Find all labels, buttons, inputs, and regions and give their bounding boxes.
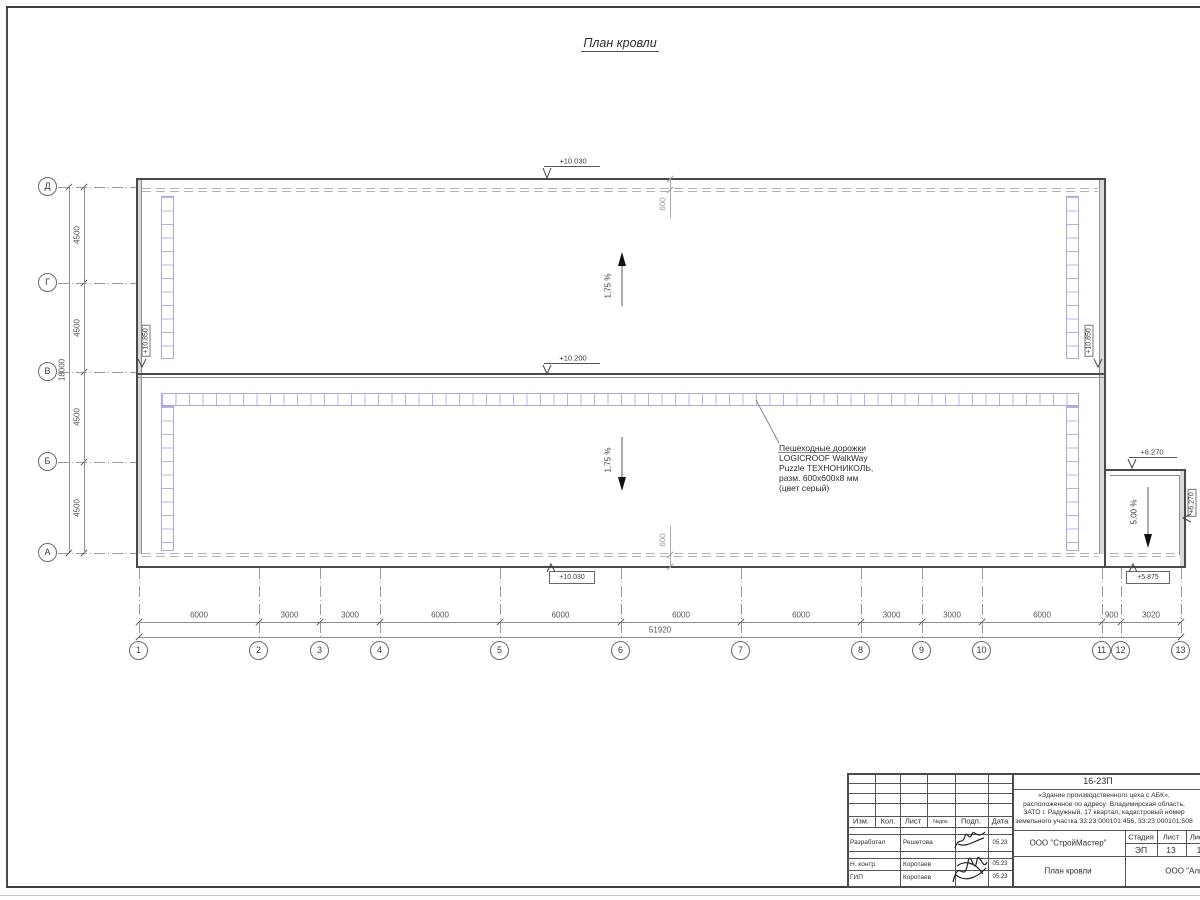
axis-bubble-row: В (38, 362, 57, 381)
tb-date-1: 05.23 (992, 861, 1007, 867)
axis-bubble-col: 12 (1111, 641, 1130, 660)
tb-line (1125, 843, 1200, 844)
dimension-label: 6000 (552, 611, 570, 620)
dimension-label: 6000 (190, 611, 208, 620)
parapet-dim-line-bottom (670, 526, 671, 568)
parapet-dash-top-2 (142, 191, 1098, 192)
tb-line (1186, 830, 1187, 856)
elevation-arrow-down-icon (136, 358, 148, 368)
tb-col-izm: Изм. (853, 817, 869, 826)
axis-bubble-col: 9 (912, 641, 931, 660)
tb-stage-value: ЭП (1135, 845, 1147, 855)
axis-bubble-col: 5 (490, 641, 509, 660)
tb-line (1157, 830, 1158, 856)
dimension-label: 6000 (431, 611, 449, 620)
dimension-label: 4500 (73, 319, 82, 337)
tb-stage-label: Стадия (1128, 833, 1154, 842)
elevation-arrow-down-icon (541, 363, 553, 375)
walkway-strip-lower-top (161, 393, 1079, 406)
tb-col-list: Лист (905, 817, 921, 826)
frame-top (6, 6, 1200, 8)
tb-line (875, 773, 876, 827)
axis-bubble-col: 7 (731, 641, 750, 660)
axis-line-col (380, 568, 381, 639)
dim-tick (1177, 633, 1184, 640)
axis-line-col (922, 568, 923, 639)
dimension-label: 6000 (1033, 611, 1051, 620)
tb-role-2: ГИП (850, 874, 863, 881)
tb-line (1125, 830, 1126, 886)
axis-bubble-col: 13 (1171, 641, 1190, 660)
slope-arrow-down-icon (1142, 486, 1154, 548)
dimension-label: 4500 (73, 226, 82, 244)
axis-bubble-col: 2 (249, 641, 268, 660)
walkway-strip-upper-left (161, 196, 174, 359)
tb-name-2: Коротаев (903, 874, 931, 881)
parapet-dash-bottom-2 (142, 556, 1098, 557)
tb-sheets-value: 1 (1197, 845, 1200, 855)
dimension-label: 6000 (792, 611, 810, 620)
sheet-edge (0, 895, 1200, 896)
tb-line (1012, 830, 1200, 831)
tb-doc-number: 16-23П (1083, 776, 1113, 786)
elevation-arrow-left-icon (1182, 512, 1192, 524)
tb-date-0: 05.23 (992, 840, 1007, 846)
elevation-arrow-down-icon (541, 166, 553, 179)
tb-date-2: 05.23 (992, 874, 1007, 880)
tb-col-data: Дата (992, 817, 1009, 826)
dimension-label: 3020 (1142, 611, 1160, 620)
slope-label-upper: 1,75 % (604, 274, 613, 299)
tb-contractor: ООО "Альянс" (1165, 867, 1200, 876)
dimension-label: 3000 (341, 611, 359, 620)
tb-col-podp: Подп. (961, 817, 981, 826)
signature-icon (952, 828, 988, 854)
dim-line (69, 187, 70, 553)
tb-line (1012, 789, 1200, 790)
tb-organization: ООО "СтройМастер" (1029, 839, 1106, 848)
parapet-offset-top: 600 (659, 197, 668, 210)
building-outline-bottom (136, 566, 1186, 568)
dimension-label: 4500 (73, 408, 82, 426)
slope-label-annex: 5,00 % (1130, 500, 1139, 525)
axis-bubble-col: 10 (972, 641, 991, 660)
axis-bubble-row: Д (38, 177, 57, 196)
dimension-total-label: 18000 (58, 359, 67, 381)
axis-line-col (259, 568, 260, 639)
elevation-arrow-down-icon (1126, 457, 1138, 469)
axis-line-col (500, 568, 501, 639)
tb-role-0: Разработал (850, 839, 885, 846)
tb-project-description: «Здание производственного цеха с АБК», р… (1009, 792, 1199, 826)
ridge-line (136, 373, 1106, 375)
tb-sheet-label: Лист (1163, 833, 1179, 842)
parapet-offset-bottom: 600 (659, 533, 668, 546)
tb-line (900, 773, 901, 886)
walkway-strip-lower-left (161, 406, 174, 551)
parapet-dash-bottom-1 (142, 553, 1098, 554)
axis-bubble-col: 3 (310, 641, 329, 660)
parapet-dash-annex-2 (1110, 556, 1180, 557)
parapet-dash-top-1 (142, 188, 1098, 189)
axis-bubble-col: 8 (851, 641, 870, 660)
tb-name-1: Коротаев (903, 861, 931, 868)
axis-bubble-col: 1 (129, 641, 148, 660)
walkway-strip-lower-right (1066, 406, 1079, 551)
parapet-dim-line-top (670, 178, 671, 218)
axis-line-col (741, 568, 742, 639)
tb-sheet-value: 13 (1166, 845, 1175, 855)
dimension-label: 6000 (672, 611, 690, 620)
dimension-label: 3000 (943, 611, 961, 620)
walkway-strip-upper-right (1066, 196, 1079, 359)
axis-line-col (621, 568, 622, 639)
tb-role-1: Н. контр. (850, 861, 877, 868)
parapet-dash-annex-1 (1110, 553, 1180, 554)
axis-bubble-row: А (38, 543, 57, 562)
tb-line (847, 886, 1200, 888)
dimension-total-label: 51920 (649, 626, 671, 635)
tb-line (927, 773, 928, 827)
axis-line-col (1121, 568, 1122, 639)
tb-col-kol: Кол. (881, 817, 896, 826)
axis-line-col (1181, 568, 1182, 639)
frame-left (6, 6, 8, 888)
elevation-arrow-up-icon (1127, 563, 1139, 573)
signature-icon (948, 852, 990, 888)
annex-inner-top (1110, 475, 1180, 476)
axis-line-col (982, 568, 983, 639)
elevation-ridge: +10.200 (559, 354, 586, 363)
dim-line (139, 637, 1181, 638)
elevation-parapet-left: +10.850 (142, 325, 151, 357)
tb-line (1012, 856, 1200, 857)
dim-line (139, 622, 1181, 623)
slope-label-lower: 1,75 % (604, 448, 613, 473)
slope-arrow-up-icon (616, 252, 628, 307)
leader-line (752, 398, 782, 446)
dimension-label: 3000 (281, 611, 299, 620)
elevation-roof-top: +10.030 (559, 157, 586, 166)
axis-line-col (139, 568, 140, 639)
dimension-label: 4500 (73, 499, 82, 517)
building-outline-top (136, 178, 1106, 180)
elevation-annex-top: +6.270 (1140, 448, 1163, 457)
axis-line-col (1102, 568, 1103, 639)
tb-sheet-name: План кровли (1044, 867, 1091, 876)
annex-outline-top (1106, 469, 1186, 471)
elevation-arrow-down-icon (1092, 358, 1104, 368)
dimension-label: 3000 (883, 611, 901, 620)
axis-line-col (320, 568, 321, 639)
tb-name-0: Решетова (903, 839, 933, 846)
axis-bubble-col: 11 (1092, 641, 1111, 660)
axis-line-col (861, 568, 862, 639)
tb-sheets-label: Листов (1190, 833, 1200, 842)
drawing-title: План кровли (540, 36, 700, 50)
tb-col-ndok: №док. (933, 819, 949, 825)
axis-line-row (58, 553, 136, 554)
axis-bubble-col: 6 (611, 641, 630, 660)
ridge-line-inner (138, 377, 1104, 378)
axis-bubble-col: 4 (370, 641, 389, 660)
dim-line (84, 187, 85, 553)
elevation-arrow-up-icon (545, 563, 557, 573)
axis-bubble-row: Г (38, 273, 57, 292)
walkway-note: Пешеходные дорожки LOGICROOF WalkWay Puz… (779, 443, 889, 493)
elevation-parapet-right: +10.850 (1085, 325, 1094, 357)
dimension-label: 900 (1105, 611, 1118, 620)
axis-bubble-row: Б (38, 452, 57, 471)
slope-arrow-down-icon (616, 436, 628, 491)
drawing-sheet: План кровли +10.030 +10.200 +10.030 +5.8… (0, 0, 1200, 900)
